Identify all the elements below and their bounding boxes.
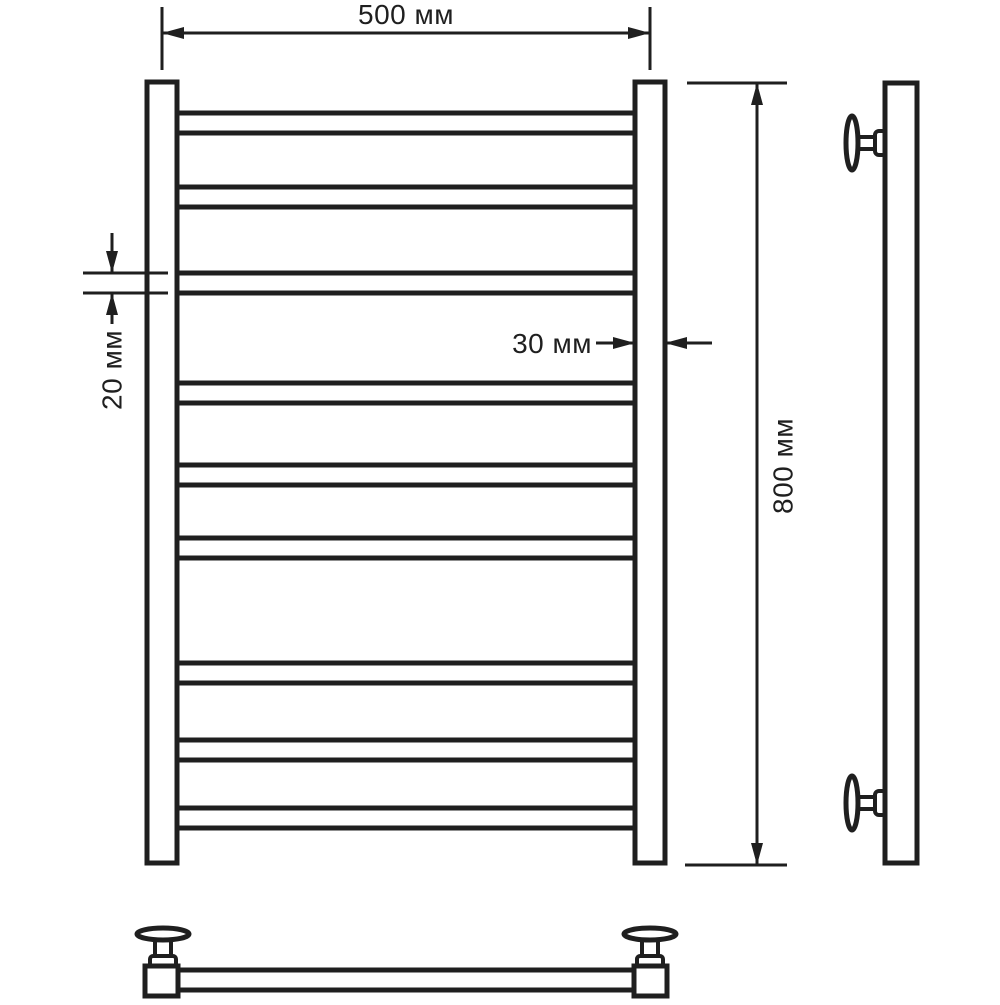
front-rungs (177, 113, 635, 828)
rail-depth-label: 30 мм (512, 328, 592, 359)
arrow-right-icon (613, 337, 635, 349)
width-label: 500 мм (358, 0, 454, 30)
wall-flange (846, 116, 858, 170)
side-bracket-lower (846, 776, 886, 830)
bottom-view (137, 928, 676, 996)
tube-diameter-label: 20 мм (97, 330, 128, 410)
bottom-end-cap-right (634, 966, 667, 996)
dimension-height: 800 мм (685, 83, 799, 865)
wall-flange (624, 928, 676, 940)
arrow-left-icon (665, 337, 687, 349)
arrow-right-icon (628, 27, 650, 39)
arrow-left-icon (162, 27, 184, 39)
bottom-mount-left (137, 928, 189, 967)
dimension-rail-depth: 30 мм (512, 328, 712, 359)
wall-flange (846, 776, 858, 830)
bottom-end-cap-left (145, 966, 178, 996)
side-bracket-upper (846, 116, 886, 170)
side-view (846, 83, 917, 863)
tube-arrowheads (106, 251, 118, 315)
bottom-rail-bar (170, 970, 642, 990)
front-view (147, 82, 665, 863)
arrow-down-icon (751, 843, 763, 865)
arrow-up-icon (751, 83, 763, 105)
towel-rail-technical-drawing: 500 мм 800 мм 20 мм 30 мм (0, 0, 1000, 1000)
front-left-rail (147, 82, 177, 863)
dimension-width: 500 мм (162, 0, 650, 70)
arrow-up-icon (106, 293, 118, 315)
side-rail-bar (885, 83, 917, 863)
bottom-mount-right (624, 928, 676, 967)
front-right-rail (635, 82, 665, 863)
arrow-down-icon (106, 251, 118, 273)
height-label: 800 мм (768, 418, 799, 514)
wall-flange (137, 928, 189, 940)
